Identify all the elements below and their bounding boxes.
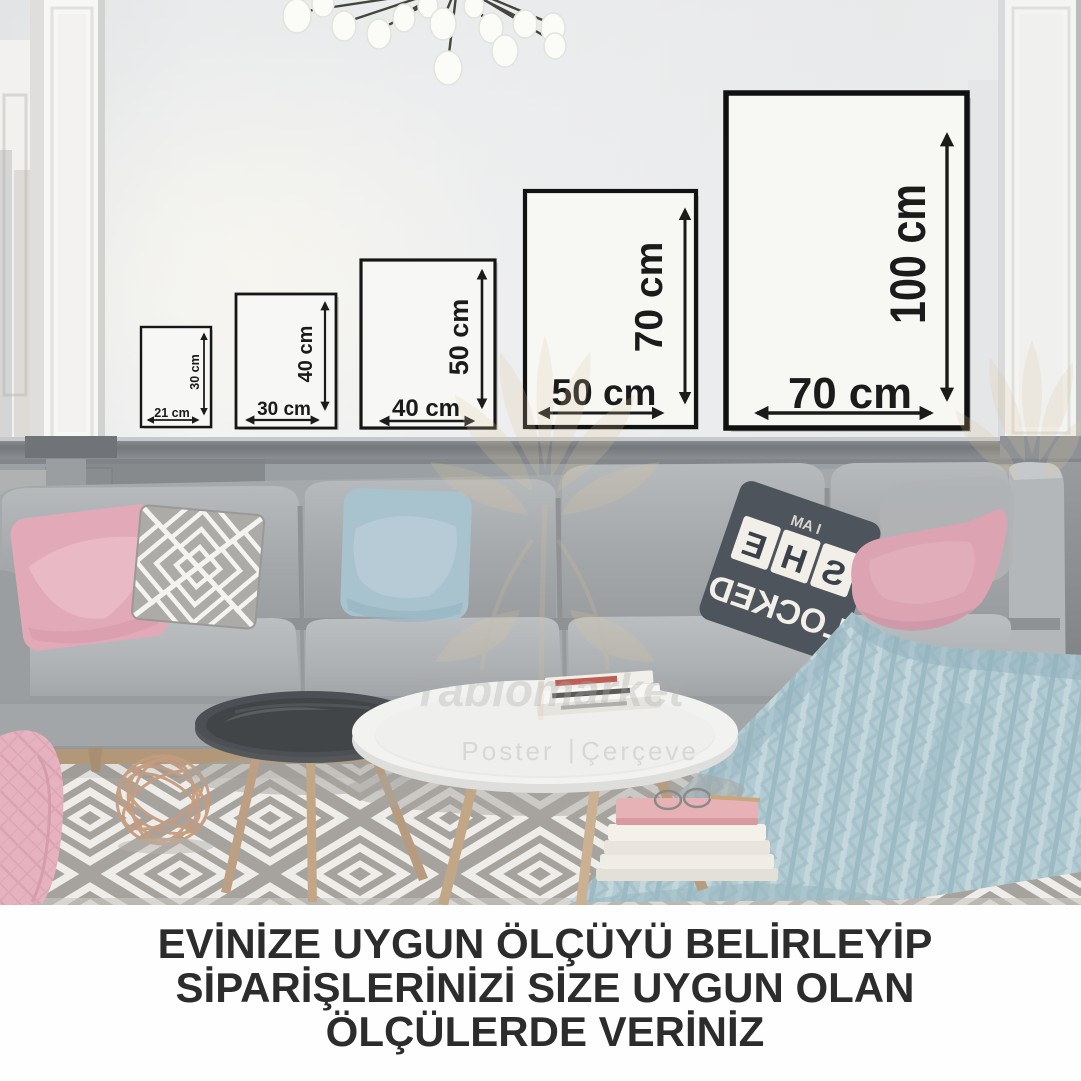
svg-text:Tablomarket: Tablomarket xyxy=(412,664,686,716)
svg-text:30 cm: 30 cm xyxy=(257,399,311,420)
svg-text:ÖLÇÜLERDE VERİNİZ: ÖLÇÜLERDE VERİNİZ xyxy=(326,1008,765,1055)
svg-text:70 cm: 70 cm xyxy=(788,369,912,418)
svg-text:EVİNİZE UYGUN ÖLÇÜYÜ BELİRLEYİ: EVİNİZE UYGUN ÖLÇÜYÜ BELİRLEYİP xyxy=(158,920,933,967)
svg-text:SİPARİŞLERİNİZİ SİZE UYGUN OLA: SİPARİŞLERİNİZİ SİZE UYGUN OLAN xyxy=(176,964,915,1011)
svg-text:30 cm: 30 cm xyxy=(188,354,202,389)
svg-text:|: | xyxy=(568,734,578,764)
svg-text:100 cm: 100 cm xyxy=(880,184,936,324)
svg-text:Poster: Poster xyxy=(461,736,554,766)
svg-text:70 cm: 70 cm xyxy=(628,242,671,353)
svg-text:50 cm: 50 cm xyxy=(444,299,474,376)
svg-text:40 cm: 40 cm xyxy=(392,395,460,422)
svg-text:Çerçeve: Çerçeve xyxy=(581,736,699,766)
svg-text:40 cm: 40 cm xyxy=(295,326,317,383)
svg-text:21 cm: 21 cm xyxy=(154,406,189,420)
